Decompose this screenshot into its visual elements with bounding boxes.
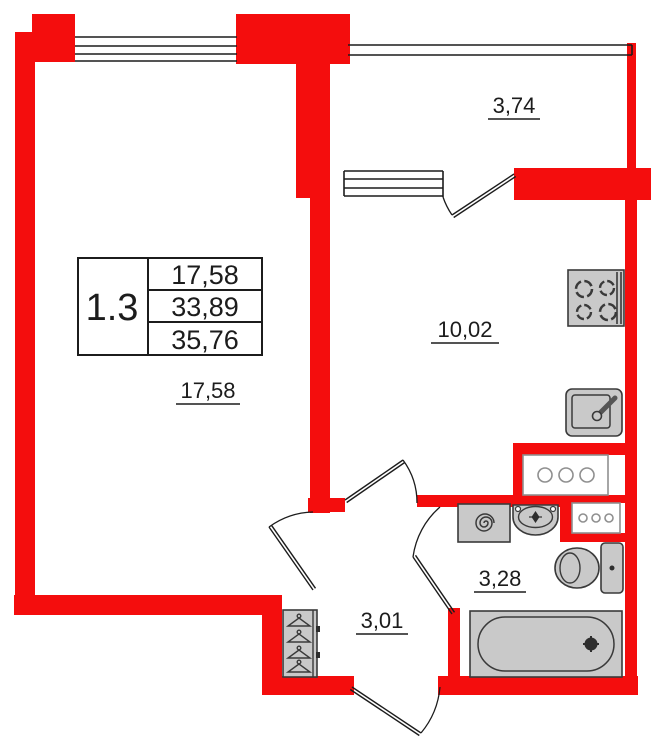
bathroom-door: [413, 507, 455, 614]
wall-bathroom-top-stub: [560, 495, 572, 542]
wall-bottom-right-of-door: [438, 676, 638, 695]
wall-left-outer: [15, 60, 35, 615]
stove-icon: [568, 270, 624, 326]
unit-total-area: 35,76: [171, 325, 239, 355]
entrance-door: [350, 687, 440, 736]
info-table: 1.3 17,58 33,89 35,76: [78, 258, 262, 355]
wardrobe-icon: [283, 610, 320, 677]
wall-above-small-radiator: [572, 495, 637, 503]
bathroom-radiator-icon: [572, 503, 620, 533]
wall-balcony-bottom: [514, 168, 651, 200]
wall-bottom-left-of-door: [262, 676, 354, 695]
wall-kitchen-niche-top: [513, 443, 637, 455]
bathtub-icon: [470, 611, 622, 677]
unit-area: 33,89: [171, 292, 239, 322]
kitchen-area-label: 10,02: [437, 317, 492, 342]
kitchen-radiator-icon: [523, 455, 608, 495]
wall-top-left-block-upper: [32, 14, 75, 34]
wall-bathroom-left: [448, 608, 460, 678]
floor-plan: 1.3 17,58 33,89 35,76 3,74 10,02 17,58 3…: [0, 0, 651, 743]
room-labels: 3,74 10,02 17,58 3,01 3,28: [176, 93, 540, 634]
bathroom-sink-icon: [513, 505, 558, 535]
kitchen-balcony-window: [344, 171, 443, 197]
wall-divider-upper: [296, 60, 330, 198]
unit-number: 1.3: [86, 287, 139, 329]
balcony-door: [443, 174, 516, 218]
wall-top-middle-block: [236, 14, 350, 64]
wall-kitchen-door-arm: [308, 498, 345, 512]
living-room-area-label: 17,58: [180, 378, 235, 403]
wall-top-left-block-lower: [15, 32, 75, 62]
living-room-window: [75, 37, 237, 61]
unit-living-area: 17,58: [171, 260, 239, 290]
balcony-area-label: 3,74: [493, 93, 536, 118]
hallway-area-label: 3,01: [361, 608, 404, 633]
bathroom-area-label: 3,28: [479, 566, 522, 591]
toilet-icon: [555, 543, 623, 593]
wall-divider-lower: [310, 197, 330, 513]
washing-machine-icon: [458, 504, 510, 542]
kitchen-door: [345, 460, 417, 503]
balcony-outer-wall: [348, 45, 632, 55]
wall-below-small-radiator: [572, 533, 637, 542]
kitchen-sink-icon: [566, 389, 622, 436]
living-room-door: [269, 512, 316, 590]
wall-living-bottom: [14, 595, 266, 615]
